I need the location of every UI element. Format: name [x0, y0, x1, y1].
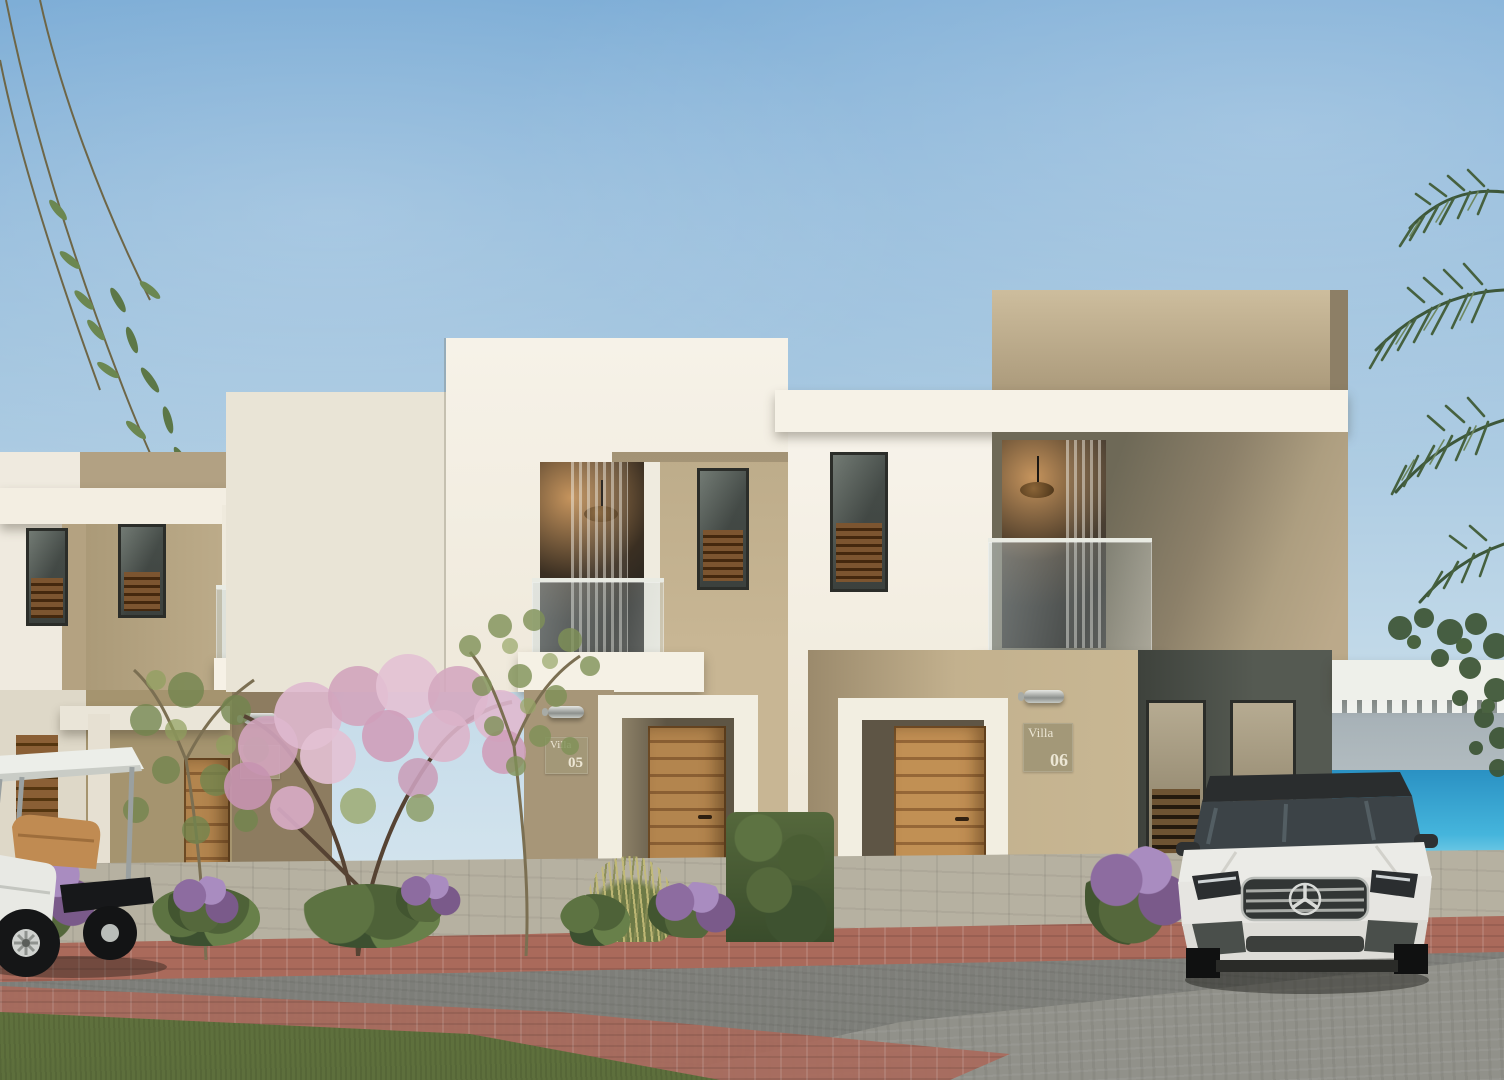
villa06-pendant-lamp — [1020, 482, 1054, 498]
villa05-upper-window — [697, 468, 749, 590]
villa-exterior-scene: Villa 05 Villa 06 — [0, 0, 1504, 1080]
villa-left-window-1 — [26, 528, 68, 626]
golf-cart — [0, 735, 182, 980]
round-shrub-center — [560, 894, 630, 946]
flower-bush-right — [1085, 845, 1190, 945]
villa06-white-band — [775, 390, 1348, 432]
villa06-wall-lamp — [1024, 690, 1064, 703]
flower-bush-center — [648, 882, 738, 938]
mercedes-car — [1176, 770, 1438, 998]
villa06-sign-label: Villa — [1028, 726, 1053, 739]
car-wheel-left — [1186, 948, 1220, 978]
entry-hedge — [726, 812, 834, 942]
car-wheel-right — [1394, 944, 1428, 974]
villa06-sign-plaque: Villa 06 — [1023, 723, 1073, 772]
flower-bush-center-left — [396, 874, 462, 922]
mid-facade-window — [830, 452, 888, 592]
villa06-parapet-side — [1330, 290, 1348, 392]
hanging-vine — [1380, 598, 1504, 798]
villa05-panel-shadowline — [612, 452, 790, 462]
car-windshield — [1192, 796, 1422, 850]
villa06-sign-number: 06 — [1050, 751, 1068, 769]
villa06-parapet-block — [992, 290, 1348, 392]
